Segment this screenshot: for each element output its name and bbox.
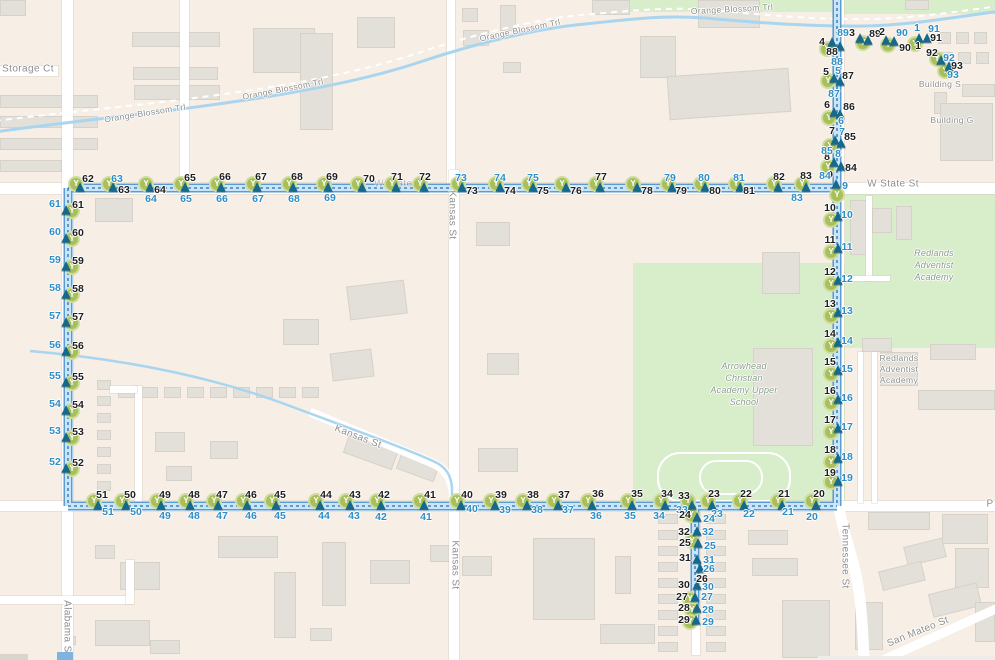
stop-number-blue: 81 [733,172,745,184]
street-label: School [730,397,759,407]
stop-number-black: 23 [708,488,720,500]
stop-number-black: 55 [72,371,84,383]
stop-number-black: 1 [915,40,921,52]
stop-number-blue: 75 [527,172,539,184]
stop-number-black: 70 [363,173,375,185]
stop-number-black: 56 [72,340,84,352]
stop-number-blue: 54 [49,398,61,410]
stop-number-blue: 8 [835,148,841,160]
stop-number-blue: 41 [420,511,432,523]
stop-number-black: 76 [570,185,582,197]
street-label: W State St [867,179,919,190]
stop-number-blue: 17 [841,421,853,433]
stop-number-black: 74 [504,185,516,197]
stop-number-blue: 67 [252,193,264,205]
street-label: Tennessee St [840,523,851,588]
stop-number-blue: 25 [704,540,716,552]
street-label: Academy Upper [710,385,777,395]
stop-number-black: 43 [349,489,361,501]
stop-number-black: 22 [740,488,752,500]
stop-number-black: 3 [849,27,855,39]
stop-number-blue: 59 [49,254,61,266]
stop-number-black: 31 [679,552,691,564]
stop-number-black: 82 [773,171,785,183]
stop-number-black: 17 [824,414,836,426]
stop-number-blue: 87 [828,88,840,100]
stop-number-blue: 74 [494,172,506,184]
stop-number-black: 83 [800,170,812,182]
stop-number-blue: 48 [188,510,200,522]
stop-number-blue: 26 [703,563,715,575]
street-label: P [986,499,993,510]
street-label: Adventist [915,260,954,270]
stop-number-black: 45 [274,489,286,501]
stop-number-blue: 50 [130,506,142,518]
stop-number-blue: 58 [49,282,61,294]
stop-number-blue: 79 [664,172,676,184]
stop-number-black: 58 [72,283,84,295]
stop-number-blue: 63 [111,173,123,185]
stop-number-blue: 15 [841,363,853,375]
stop-number-blue: 52 [49,456,61,468]
stop-number-black: 87 [842,70,854,82]
stop-number-black: 65 [184,172,196,184]
stop-number-blue: 16 [841,392,853,404]
stop-number-blue: 64 [145,193,157,205]
street-label: Arrowhead [721,361,766,371]
stop-number-blue: 46 [245,510,257,522]
stop-number-black: 5 [823,66,829,78]
stop-number-blue: 32 [702,526,714,538]
stop-number-blue: 18 [841,451,853,463]
street-label: Academy [880,375,918,385]
stop-number-black: 21 [778,488,790,500]
stop-number-black: 90 [899,42,911,54]
stop-number-blue: 89 [837,27,849,39]
stop-number-black: 18 [824,444,836,456]
stop-number-blue: 27 [701,591,713,603]
street-label: Alabama St [62,600,73,656]
stop-number-blue: 42 [375,511,387,523]
stop-number-black: 7 [829,125,835,137]
stop-number-blue: 84 [819,170,831,182]
stop-number-black: 33 [678,490,690,502]
stop-number-black: 42 [378,489,390,501]
stop-number-black: 49 [159,489,171,501]
stop-number-black: 80 [709,185,721,197]
stop-number-blue: 37 [562,504,574,516]
stop-number-black: 77 [595,171,607,183]
stop-number-blue: 1 [914,22,920,34]
stop-number-blue: 53 [49,425,61,437]
stop-number-blue: 91 [928,23,940,35]
attribution-strip [818,656,995,660]
stop-number-black: 24 [679,509,691,521]
street-label: Kansas St [447,190,458,239]
stop-number-black: 19 [824,467,836,479]
stop-number-blue: 43 [348,510,360,522]
stop-number-black: 71 [391,171,403,183]
stop-number-black: 84 [845,162,857,174]
stop-number-blue: 66 [216,193,228,205]
stop-number-blue: 73 [455,172,467,184]
stop-number-black: 67 [255,171,267,183]
stop-number-blue: 19 [841,472,853,484]
stop-number-black: 51 [96,489,108,501]
stop-number-black: 75 [537,185,549,197]
stop-number-blue: 80 [698,172,710,184]
stop-number-black: 46 [245,489,257,501]
stop-number-black: 68 [291,171,303,183]
stop-number-black: 12 [824,266,836,278]
street-label: Adventist [880,364,919,374]
stop-number-black: 6 [824,99,830,111]
stop-number-blue: 47 [216,510,228,522]
stop-number-black: 61 [72,199,84,211]
stop-number-blue: 28 [702,604,714,616]
stop-number-blue: 14 [841,335,853,347]
stop-number-blue: 6 [838,115,844,127]
stop-number-blue: 9 [842,180,848,192]
stop-number-blue: 39 [499,504,511,516]
stop-number-blue: 85 [821,145,833,157]
stop-number-black: 59 [72,255,84,267]
stop-number-black: 11 [824,234,835,246]
stop-number-black: 62 [82,173,94,185]
stop-number-black: 2 [879,26,885,38]
stop-number-black: 34 [661,488,673,500]
street-label: Storage Ct [2,64,54,75]
stop-number-blue: 10 [841,209,853,221]
stop-number-black: 81 [743,185,755,197]
stop-number-black: 29 [678,614,690,626]
stop-number-blue: 11 [841,241,852,253]
street-label: Building G [930,115,973,125]
stop-number-black: 39 [495,489,507,501]
stop-number-blue: 51 [102,506,114,518]
stop-number-black: 30 [678,579,690,591]
stop-number-blue: 36 [590,510,602,522]
stop-number-black: 63 [118,184,130,196]
stop-number-blue: 57 [49,310,61,322]
stop-number-black: 53 [72,426,84,438]
stop-number-blue: 38 [531,504,543,516]
street-label: Redlands [879,353,918,363]
stop-number-blue: 68 [288,193,300,205]
stop-number-blue: 83 [791,192,803,204]
stop-number-black: 52 [72,457,84,469]
stop-number-blue: 69 [324,192,336,204]
stop-number-black: 78 [641,185,653,197]
stop-number-black: 16 [824,385,836,397]
stop-number-blue: 55 [49,370,61,382]
stop-number-black: 66 [219,171,231,183]
stop-number-black: 44 [320,489,332,501]
stop-number-black: 92 [926,47,938,59]
stop-number-blue: 40 [466,503,478,515]
stop-number-black: 73 [466,185,478,197]
stop-number-blue: 65 [180,193,192,205]
stop-number-black: 41 [424,489,436,501]
stop-number-black: 15 [824,356,836,368]
stop-number-black: 35 [631,488,643,500]
stop-number-blue: 90 [896,27,908,39]
stop-number-black: 38 [527,489,539,501]
street-label: Kansas St [450,540,461,589]
stop-number-black: 4 [819,36,825,48]
map-canvas[interactable]: Storage CtOrange Blossom TrlOrange Bloss… [0,0,995,660]
street-label: Academy [915,272,954,282]
stop-number-blue: 24 [703,513,715,525]
stop-number-blue: 20 [806,511,818,523]
stop-number-blue: 61 [49,198,61,210]
stop-number-black: 54 [72,399,84,411]
stop-number-black: 10 [824,202,836,214]
stop-number-blue: 93 [947,69,959,81]
stop-number-black: 13 [824,298,836,310]
stop-number-black: 57 [72,311,84,323]
stop-number-blue: 13 [841,305,853,317]
stop-number-blue: 44 [318,510,330,522]
stop-number-black: 14 [824,328,836,340]
stop-number-blue: 21 [782,506,794,518]
stop-number-black: 79 [675,185,687,197]
street-label: Christian [725,373,762,383]
street-label: Redlands [914,248,954,258]
stop-number-blue: 60 [49,226,61,238]
stop-number-black: 36 [592,488,604,500]
stop-number-black: 37 [558,489,570,501]
stop-number-black: 72 [419,171,431,183]
stop-number-black: 48 [188,489,200,501]
stop-number-black: 47 [216,489,228,501]
stop-number-black: 85 [844,131,856,143]
stop-number-blue: 34 [653,510,665,522]
stop-number-blue: 29 [702,616,714,628]
stop-number-blue: 56 [49,339,61,351]
stop-number-black: 40 [461,489,473,501]
stop-number-blue: 45 [274,510,286,522]
stop-number-black: 69 [326,171,338,183]
stop-number-black: 28 [678,602,690,614]
stop-number-black: 25 [679,537,691,549]
attribution-fragment [0,654,28,660]
stop-number-blue: 88 [831,56,843,68]
stop-number-black: 20 [813,488,825,500]
canal [30,351,452,503]
map-widget-fragment [57,652,73,660]
stop-number-black: 50 [124,489,136,501]
stop-number-blue: 22 [743,508,755,520]
stop-number-blue: 12 [841,273,853,285]
stop-number-blue: 49 [159,510,171,522]
stop-number-black: 60 [72,227,84,239]
stop-number-black: 86 [843,101,855,113]
stop-number-blue: 35 [624,510,636,522]
